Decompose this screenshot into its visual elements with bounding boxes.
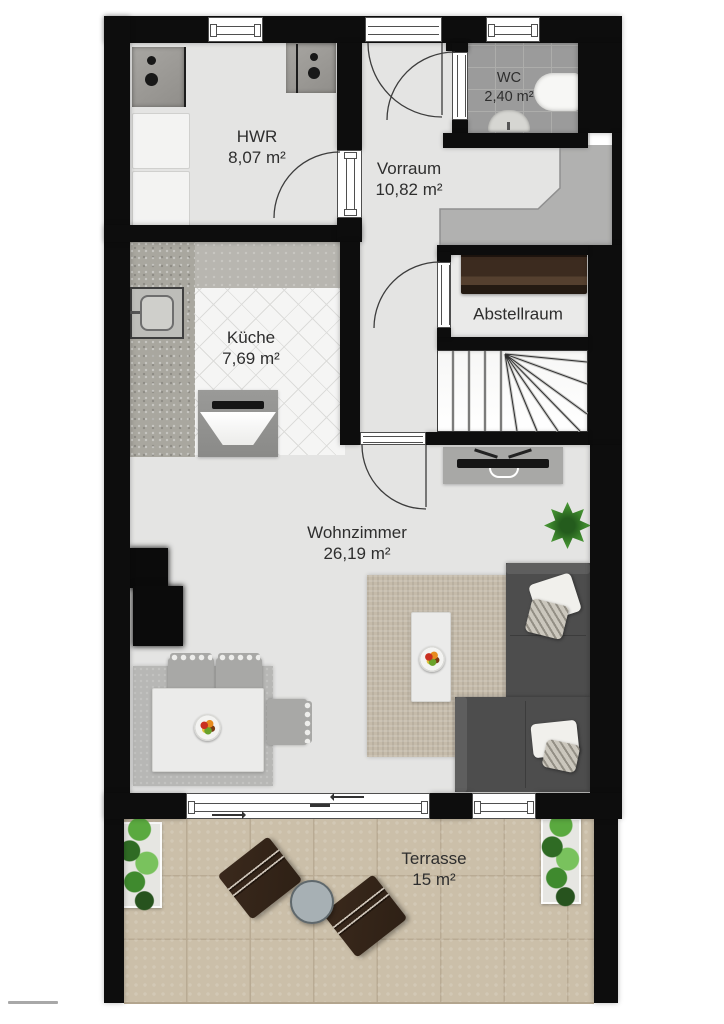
door-swing-wc bbox=[387, 52, 455, 120]
room-area: 7,69 m² bbox=[222, 348, 280, 369]
room-area: 15 m² bbox=[401, 869, 466, 890]
floor-plan: HWR 8,07 m² WC 2,40 m² Vorraum 10,82 m² … bbox=[0, 0, 724, 1024]
room-name: WC bbox=[484, 69, 533, 88]
room-label-vorraum: Vorraum 10,82 m² bbox=[375, 158, 442, 200]
door-swing-abstellraum bbox=[374, 262, 440, 328]
room-label-abstellraum: Abstellraum bbox=[473, 304, 563, 325]
room-label-hwr: HWR 8,07 m² bbox=[228, 126, 286, 168]
fine-print-watermark bbox=[8, 1001, 58, 1004]
room-label-wohnzimmer: Wohnzimmer 26,19 m² bbox=[307, 522, 407, 564]
room-name: HWR bbox=[228, 126, 286, 147]
room-name: Küche bbox=[222, 327, 280, 348]
plan-linework bbox=[0, 0, 724, 1024]
room-name: Abstellraum bbox=[473, 304, 563, 325]
room-label-wc: WC 2,40 m² bbox=[484, 69, 533, 107]
room-label-terrasse: Terrasse 15 m² bbox=[401, 848, 466, 890]
room-area: 2,40 m² bbox=[484, 88, 533, 107]
wardrobe-outline bbox=[440, 148, 560, 245]
room-name: Wohnzimmer bbox=[307, 522, 407, 543]
room-area: 10,82 m² bbox=[375, 179, 442, 200]
room-label-kueche: Küche 7,69 m² bbox=[222, 327, 280, 369]
room-area: 8,07 m² bbox=[228, 147, 286, 168]
room-area: 26,19 m² bbox=[307, 543, 407, 564]
door-swing-entry bbox=[368, 43, 442, 117]
room-name: Vorraum bbox=[375, 158, 442, 179]
door-swing-wohnzimmer bbox=[362, 445, 426, 509]
room-name: Terrasse bbox=[401, 848, 466, 869]
